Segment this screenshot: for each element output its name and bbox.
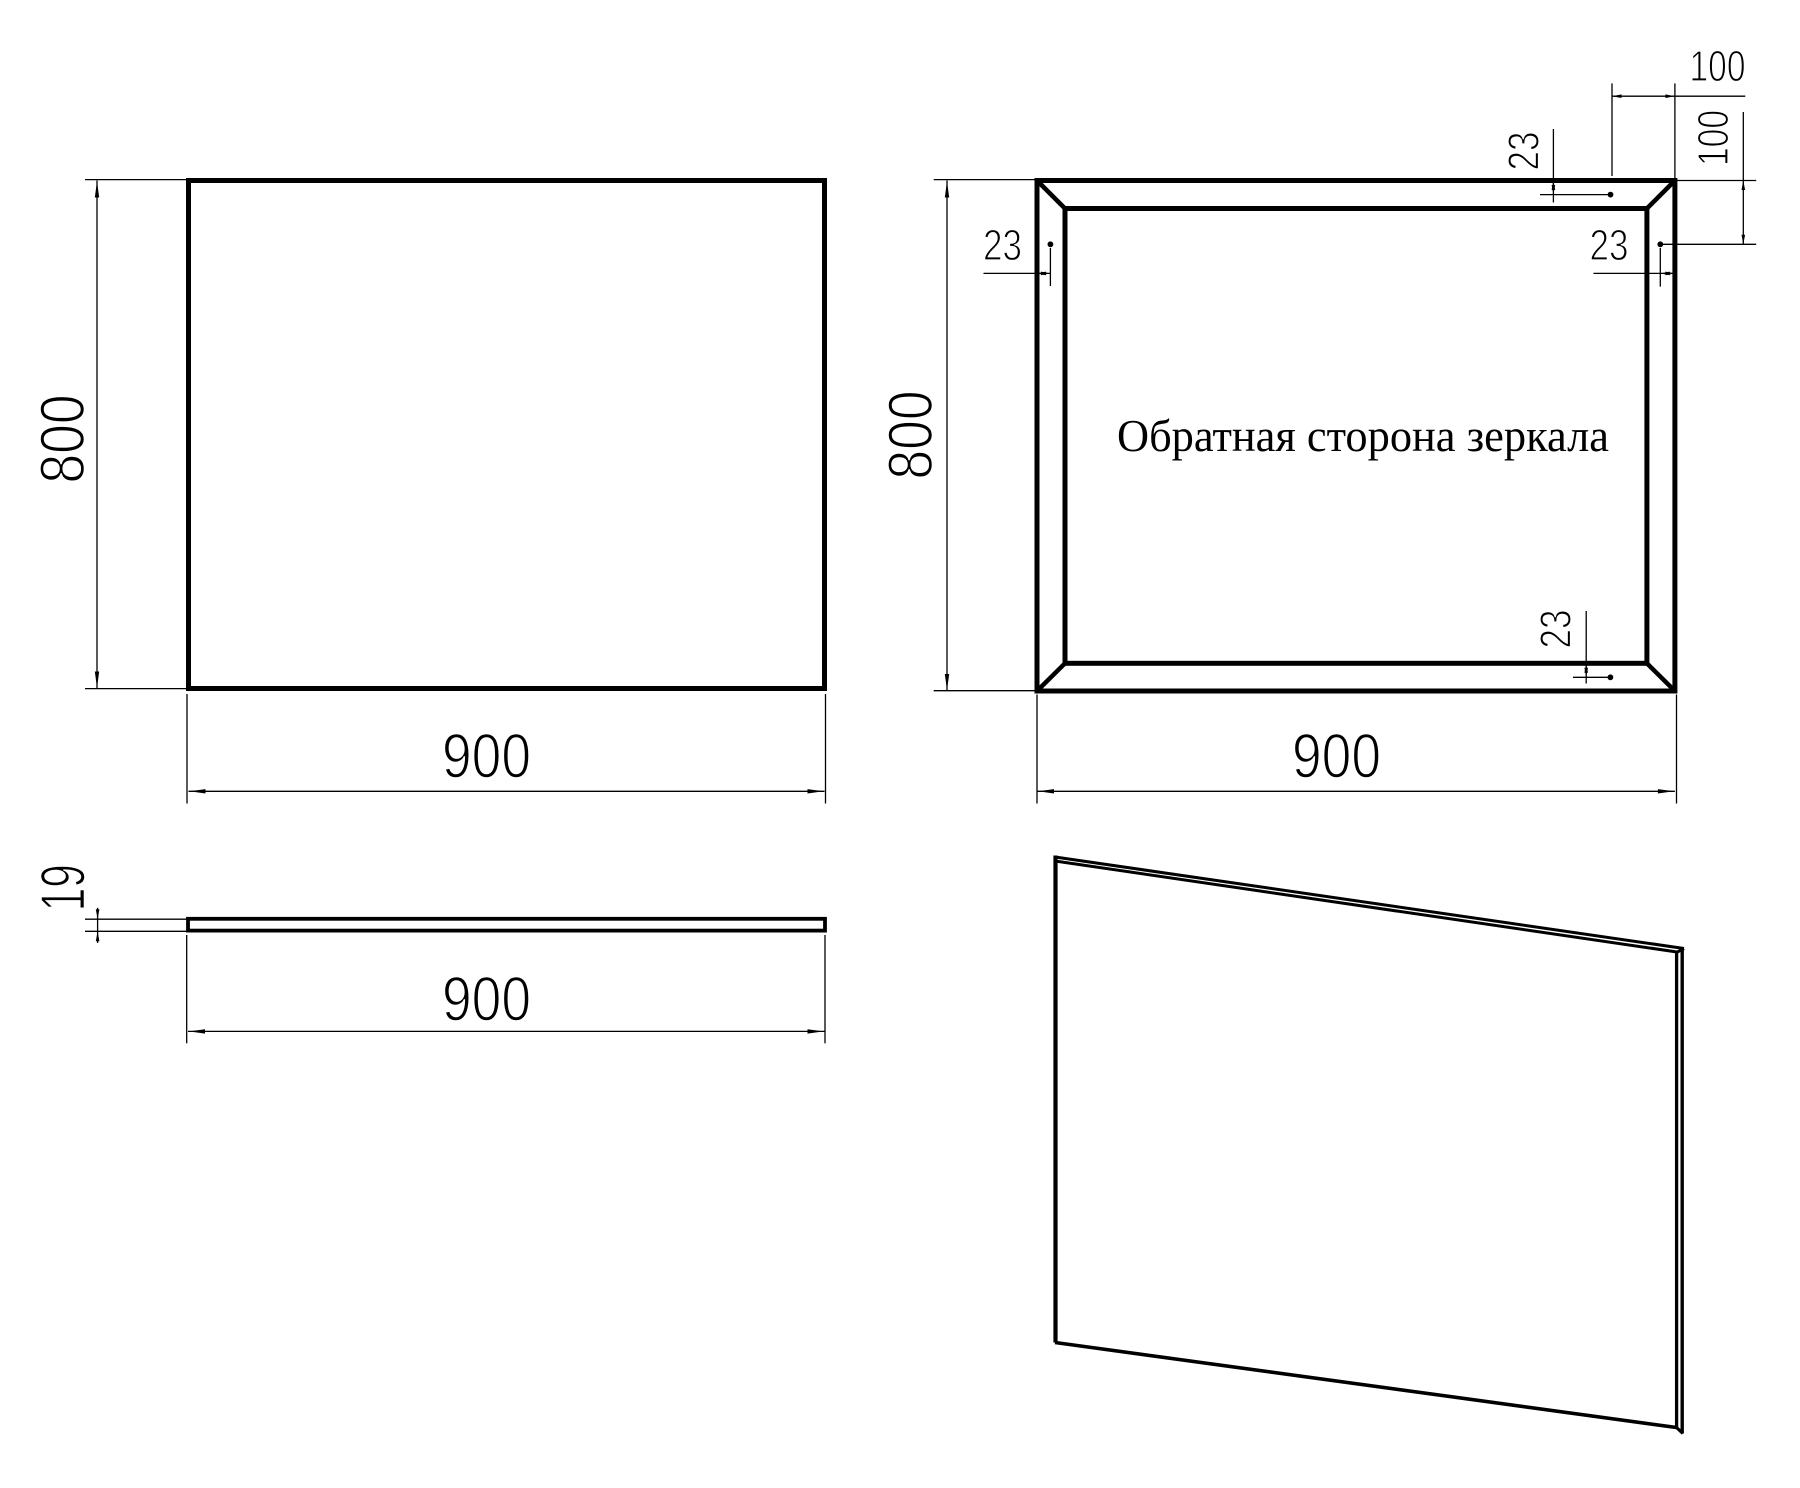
svg-text:900: 900	[442, 721, 531, 791]
svg-text:900: 900	[1292, 722, 1381, 792]
svg-text:100: 100	[1690, 110, 1738, 166]
svg-text:19: 19	[28, 864, 98, 911]
svg-text:100: 100	[1690, 43, 1746, 91]
svg-text:900: 900	[442, 965, 531, 1035]
svg-text:23: 23	[1533, 610, 1581, 649]
svg-text:23: 23	[1500, 132, 1548, 171]
svg-text:800: 800	[876, 391, 946, 480]
svg-text:Обратная сторона зеркала: Обратная сторона зеркала	[1117, 411, 1609, 461]
svg-text:800: 800	[28, 395, 98, 484]
svg-text:23: 23	[1590, 222, 1629, 270]
svg-text:23: 23	[983, 222, 1022, 270]
